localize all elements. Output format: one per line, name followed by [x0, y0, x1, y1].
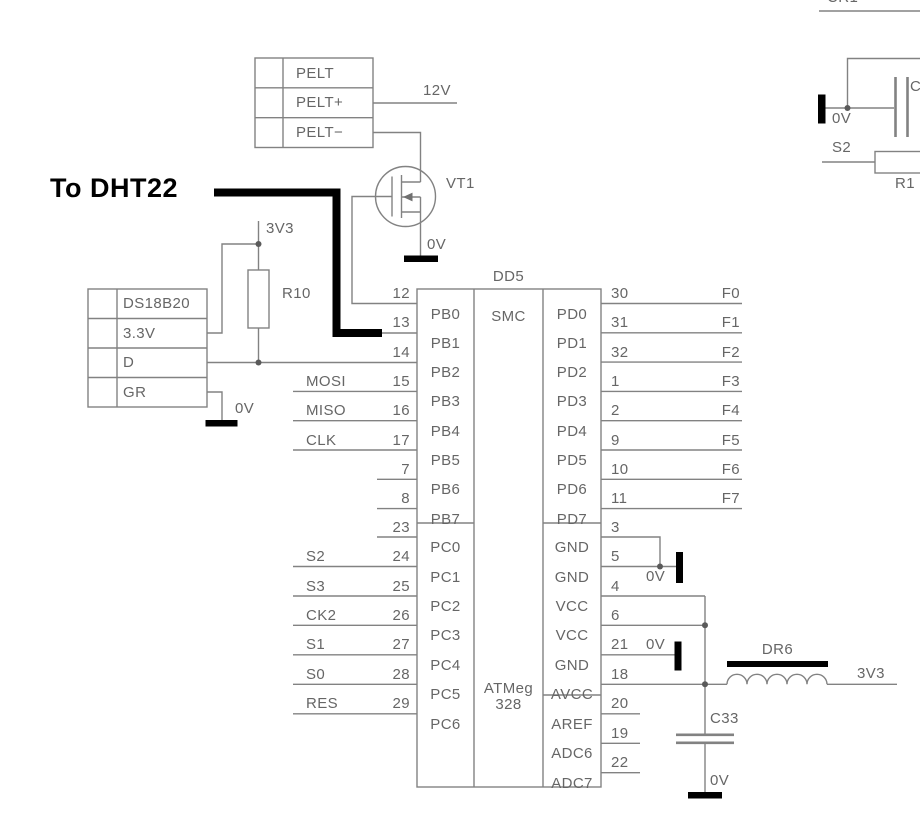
connector-row-label: GR	[123, 385, 146, 400]
connector-row-label: PELT	[296, 66, 334, 81]
ic-pin-name: VCC	[544, 628, 600, 643]
connector-row-label: DS18B20	[123, 296, 190, 311]
ic-pin-name: PC1	[417, 570, 474, 585]
ic-pin-number: 11	[611, 491, 627, 506]
ic-pin-number: 31	[611, 315, 629, 330]
ic-pin-name: PB1	[417, 336, 474, 351]
ic-pin-number: 8	[360, 491, 410, 506]
ic-pin-number: 1	[611, 374, 620, 389]
ic-pin-number: 3	[611, 520, 620, 535]
ic-pin-number: 28	[360, 667, 410, 682]
ic-pin-number: 27	[360, 637, 410, 652]
ic-pin-number: 26	[360, 608, 410, 623]
pin-signal-label: S2	[306, 549, 325, 564]
ic-pin-number: 14	[360, 345, 410, 360]
ic-pin-number: 9	[611, 433, 620, 448]
ic-pin-number: 23	[360, 520, 410, 535]
ic-pin-name: PD2	[544, 365, 600, 380]
ic-pin-name: PC6	[417, 717, 474, 732]
pin-signal-label: F0	[690, 286, 740, 301]
ic-pin-number: 29	[360, 696, 410, 711]
ic-pin-number: 16	[360, 403, 410, 418]
ic-pin-name: PD6	[544, 482, 600, 497]
ic-pin-name: PB2	[417, 365, 474, 380]
pin-signal-label: S0	[306, 667, 325, 682]
ic-pin-name: AREF	[544, 717, 600, 732]
pin-signal-label: F6	[690, 462, 740, 477]
ic-pin-name: PD7	[544, 512, 600, 527]
ic-pin-name: PD0	[544, 307, 600, 322]
pin-signal-label: S1	[306, 637, 325, 652]
ic-pin-name: PB3	[417, 394, 474, 409]
ic-pin-number: 20	[611, 696, 629, 711]
pin-signal-label: F1	[690, 315, 740, 330]
pin-signal-label: CK2	[306, 608, 336, 623]
ic-pin-name: GND	[544, 658, 600, 673]
ic-pin-name: PC2	[417, 599, 474, 614]
pin-signal-label: F4	[690, 403, 740, 418]
ic-pin-number: 10	[611, 462, 629, 477]
ic-pin-number: 22	[611, 755, 629, 770]
pin-signal-label: MISO	[306, 403, 346, 418]
connector-row-label: D	[123, 355, 134, 370]
ic-pin-name: PB0	[417, 307, 474, 322]
ic-pin-number: 32	[611, 345, 629, 360]
ic-pin-number: 2	[611, 403, 620, 418]
ic-pin-name: PC4	[417, 658, 474, 673]
ic-pin-number: 24	[360, 549, 410, 564]
ic-pin-name: GND	[544, 570, 600, 585]
ic-pin-number: 5	[611, 549, 620, 564]
ic-pin-number: 18	[611, 667, 629, 682]
ic-pin-name: PB4	[417, 424, 474, 439]
pin-signal-label: RES	[306, 696, 338, 711]
ic-pin-name: PC5	[417, 687, 474, 702]
ic-pin-number: 15	[360, 374, 410, 389]
connector-row-label: 3.3V	[123, 326, 155, 341]
ic-pin-name: PD4	[544, 424, 600, 439]
ic-pin-number: 17	[360, 433, 410, 448]
ic-pin-name: VCC	[544, 599, 600, 614]
ic-pin-name: PC3	[417, 628, 474, 643]
ic-pin-name: PB5	[417, 453, 474, 468]
pin-signal-label: F7	[690, 491, 740, 506]
pin-signal-label: F2	[690, 345, 740, 360]
ic-pin-number: 25	[360, 579, 410, 594]
ic-pin-name: PD5	[544, 453, 600, 468]
schematic-page: To DHT22 DD5 SMC ATMeg 328 VT1 R10 DR6 C…	[0, 0, 920, 823]
ic-pin-name: PD1	[544, 336, 600, 351]
ic-pin-name: PD3	[544, 394, 600, 409]
ic-pin-name: ADC6	[544, 746, 600, 761]
ic-pin-number: 6	[611, 608, 620, 623]
ic-pin-number: 19	[611, 726, 629, 741]
ic-pin-number: 7	[360, 462, 410, 477]
ic-pin-number: 13	[360, 315, 410, 330]
connector-row-label: PELT+	[296, 95, 343, 110]
ic-pin-name: PB6	[417, 482, 474, 497]
ic-pin-name: GND	[544, 540, 600, 555]
pin-signal-label: MOSI	[306, 374, 346, 389]
ic-pin-number: 4	[611, 579, 620, 594]
ic-pin-name: ADC7	[544, 776, 600, 791]
ic-pin-number: 21	[611, 637, 629, 652]
pin-signal-label: S3	[306, 579, 325, 594]
generated-labels-layer: 12PB013PB114PB215PB3MOSI16PB4MISO17PB5CL…	[0, 0, 920, 823]
ic-pin-name: PB7	[417, 512, 474, 527]
ic-pin-number: 12	[360, 286, 410, 301]
ic-pin-name: PC0	[417, 540, 474, 555]
pin-signal-label: F5	[690, 433, 740, 448]
pin-signal-label: F3	[690, 374, 740, 389]
ic-pin-number: 30	[611, 286, 629, 301]
ic-pin-name: AVCC	[544, 687, 600, 702]
pin-signal-label: CLK	[306, 433, 336, 448]
connector-row-label: PELT−	[296, 125, 343, 140]
